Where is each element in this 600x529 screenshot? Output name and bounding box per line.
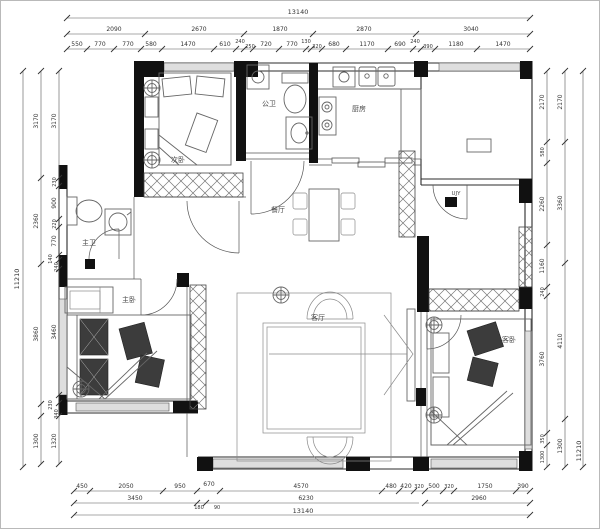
dim-label: 500 — [428, 483, 440, 490]
dimensions-bottom: 450 2050 950 670 4570 480 420 320 500 32… — [71, 481, 533, 518]
dim-label: 1470 — [180, 41, 195, 48]
dim-label: 420 — [400, 483, 412, 490]
dim-label: 4110 — [557, 333, 564, 348]
dim-label: 1870 — [272, 26, 287, 33]
dining-set — [293, 189, 355, 241]
dim-label: 11210 — [13, 269, 21, 290]
dim-label: 4570 — [293, 483, 308, 490]
entry-door-tag: UJY — [451, 191, 461, 197]
dimensions-top: 13140 2090 2670 1870 2870 3040 550 770 7… — [64, 8, 533, 52]
dim-label: 130 — [301, 39, 311, 45]
floor-plan-page: 次卧 公卫 厨房 主卫 餐厅 客厅 主卧 客卧 UJY 13140 2090 2… — [0, 0, 600, 529]
nightstand — [145, 97, 158, 117]
dim-label: 1470 — [495, 41, 510, 48]
dim-label: 3170 — [51, 113, 58, 128]
dim-label: 2260 — [539, 196, 546, 211]
master-bath-fixtures — [67, 197, 131, 235]
room-label-master-bedroom: 主卧 — [122, 295, 136, 304]
closet-guest — [429, 289, 519, 311]
room-label-kitchen: 厨房 — [352, 104, 366, 113]
dim-label: 320 — [444, 484, 454, 490]
room-label-guest-bathroom: 公卫 — [262, 100, 276, 108]
dim-label: 180 — [194, 505, 204, 511]
room-label-dining: 餐厅 — [271, 205, 285, 214]
dim-label: 2960 — [471, 495, 486, 502]
dimensions-right: 2170 580 2260 1160 240 3760 350 1300 217… — [539, 68, 586, 470]
dim-label: 2360 — [33, 213, 40, 228]
ceiling-light-icon — [144, 152, 160, 168]
dim-label: 240 — [540, 287, 546, 297]
door-leaf-master-bath — [85, 259, 95, 269]
closet-bedroom2 — [144, 173, 243, 197]
dim-label: 770 — [94, 41, 106, 48]
dim-label: 90 — [214, 505, 220, 511]
room-label-secondary-bedroom: 次卧 — [171, 155, 185, 164]
dim-label: 1170 — [359, 41, 374, 48]
ceiling-light-icon — [426, 317, 442, 333]
bed-guest — [431, 319, 531, 445]
walls — [59, 61, 532, 471]
dim-label: 220 — [52, 219, 58, 229]
dim-label: 450 — [76, 483, 88, 490]
closet-master — [190, 285, 206, 409]
dim-label: 3040 — [463, 26, 478, 33]
dim-label: 320 — [414, 484, 424, 490]
dim-label: 1750 — [477, 483, 492, 490]
room-label-living: 客厅 — [311, 313, 325, 322]
cabinet-hall — [399, 151, 415, 237]
dim-label: 720 — [260, 41, 272, 48]
dim-label: 2170 — [539, 94, 546, 109]
ceiling-light-icon — [144, 80, 160, 96]
dim-label: 240 — [410, 39, 420, 45]
dim-label: 3460 — [51, 324, 58, 339]
dim-label: 610 — [219, 41, 231, 48]
dim-label: 230 — [48, 400, 54, 410]
dim-label: 770 — [51, 235, 58, 247]
dim-label: 680 — [328, 41, 340, 48]
dim-label: 1320 — [51, 433, 58, 448]
dim-label: 770 — [122, 41, 134, 48]
ac-unit — [467, 139, 491, 152]
ceiling-light-icon — [73, 381, 89, 397]
room-label-master-bathroom: 主卫 — [82, 238, 96, 247]
dim-label: 240 — [235, 39, 245, 45]
dim-label: 13140 — [288, 8, 309, 16]
door-guest-bedroom — [427, 315, 461, 349]
dim-label: 550 — [71, 41, 83, 48]
dim-label: 230 — [52, 177, 58, 187]
dim-label: 3760 — [539, 351, 546, 366]
dim-label: 3360 — [557, 195, 564, 210]
dim-label: 3860 — [33, 326, 40, 341]
dim-label: 11210 — [575, 441, 583, 462]
ceiling-light-icon — [426, 407, 442, 423]
dim-label: 690 — [394, 41, 406, 48]
dim-label: 950 — [174, 483, 186, 490]
stove — [319, 97, 336, 135]
dim-label: 1300 — [557, 438, 564, 453]
door-master-bedroom — [141, 279, 177, 315]
tv-cabinet — [407, 309, 415, 401]
dim-label: 13140 — [293, 507, 314, 515]
dim-label: 580 — [540, 147, 546, 157]
dim-label: 2090 — [106, 26, 121, 33]
dimensions-left: 11210 3170 2360 3860 1300 3170 230 900 2… — [13, 68, 62, 470]
living-set — [237, 287, 415, 464]
dim-label: 6230 — [298, 495, 313, 502]
ceiling-light-icon — [273, 287, 289, 303]
window-bedroom2 — [164, 63, 234, 71]
dim-label: 320 — [312, 44, 322, 50]
door-leaf-entry — [445, 197, 457, 207]
dim-label: 2870 — [356, 26, 371, 33]
dim-label: 1300 — [33, 433, 40, 448]
nightstand — [145, 129, 158, 149]
bed-secondary — [159, 73, 231, 165]
shaft-right — [519, 227, 532, 287]
dim-label: 900 — [51, 197, 58, 209]
dim-label: 580 — [145, 41, 157, 48]
window-top-right — [439, 63, 520, 71]
guest-bath-fixtures — [247, 65, 312, 149]
door-bedroom2 — [187, 201, 239, 253]
kitchen-fixtures — [318, 67, 421, 159]
dim-label: 390 — [517, 483, 529, 490]
dim-label: 3170 — [33, 113, 40, 128]
dim-label: 670 — [203, 481, 215, 488]
dim-label: 770 — [286, 41, 298, 48]
floor-plan-drawing: 次卧 公卫 厨房 主卫 餐厅 客厅 主卧 客卧 UJY 13140 2090 2… — [1, 1, 600, 529]
dim-label: 1160 — [539, 258, 546, 273]
dim-label: 250 — [245, 44, 255, 50]
window-balcony — [213, 459, 343, 468]
dim-label: 2050 — [118, 483, 133, 490]
dim-label: 2170 — [557, 94, 564, 109]
window-master-bottom — [76, 403, 169, 411]
window-guest-bottom — [431, 459, 517, 468]
dim-label: 240 — [54, 262, 60, 272]
room-label-guest-bedroom: 客卧 — [502, 335, 516, 344]
dim-label: 350 — [540, 434, 546, 444]
dim-label: 3450 — [127, 495, 142, 502]
dim-label: 1300 — [540, 451, 546, 464]
dim-label: 480 — [385, 483, 397, 490]
dim-label: 1180 — [448, 41, 463, 48]
dim-label: 340 — [54, 409, 60, 419]
dim-label: 390 — [423, 44, 433, 50]
dim-label: 2670 — [191, 26, 206, 33]
